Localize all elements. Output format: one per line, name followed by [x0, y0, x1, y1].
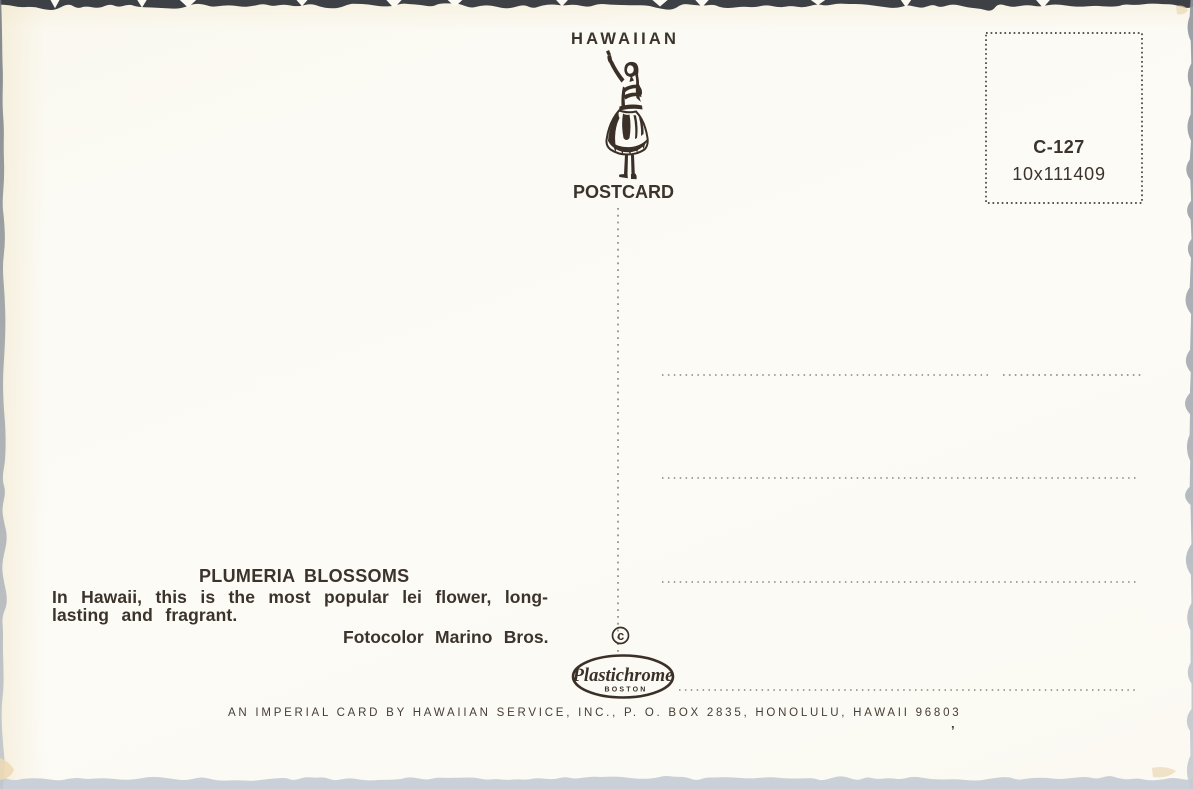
- svg-text:Plastichrome: Plastichrome: [572, 666, 674, 686]
- svg-text:c: c: [617, 629, 624, 643]
- svg-text:BOSTON: BOSTON: [604, 687, 647, 694]
